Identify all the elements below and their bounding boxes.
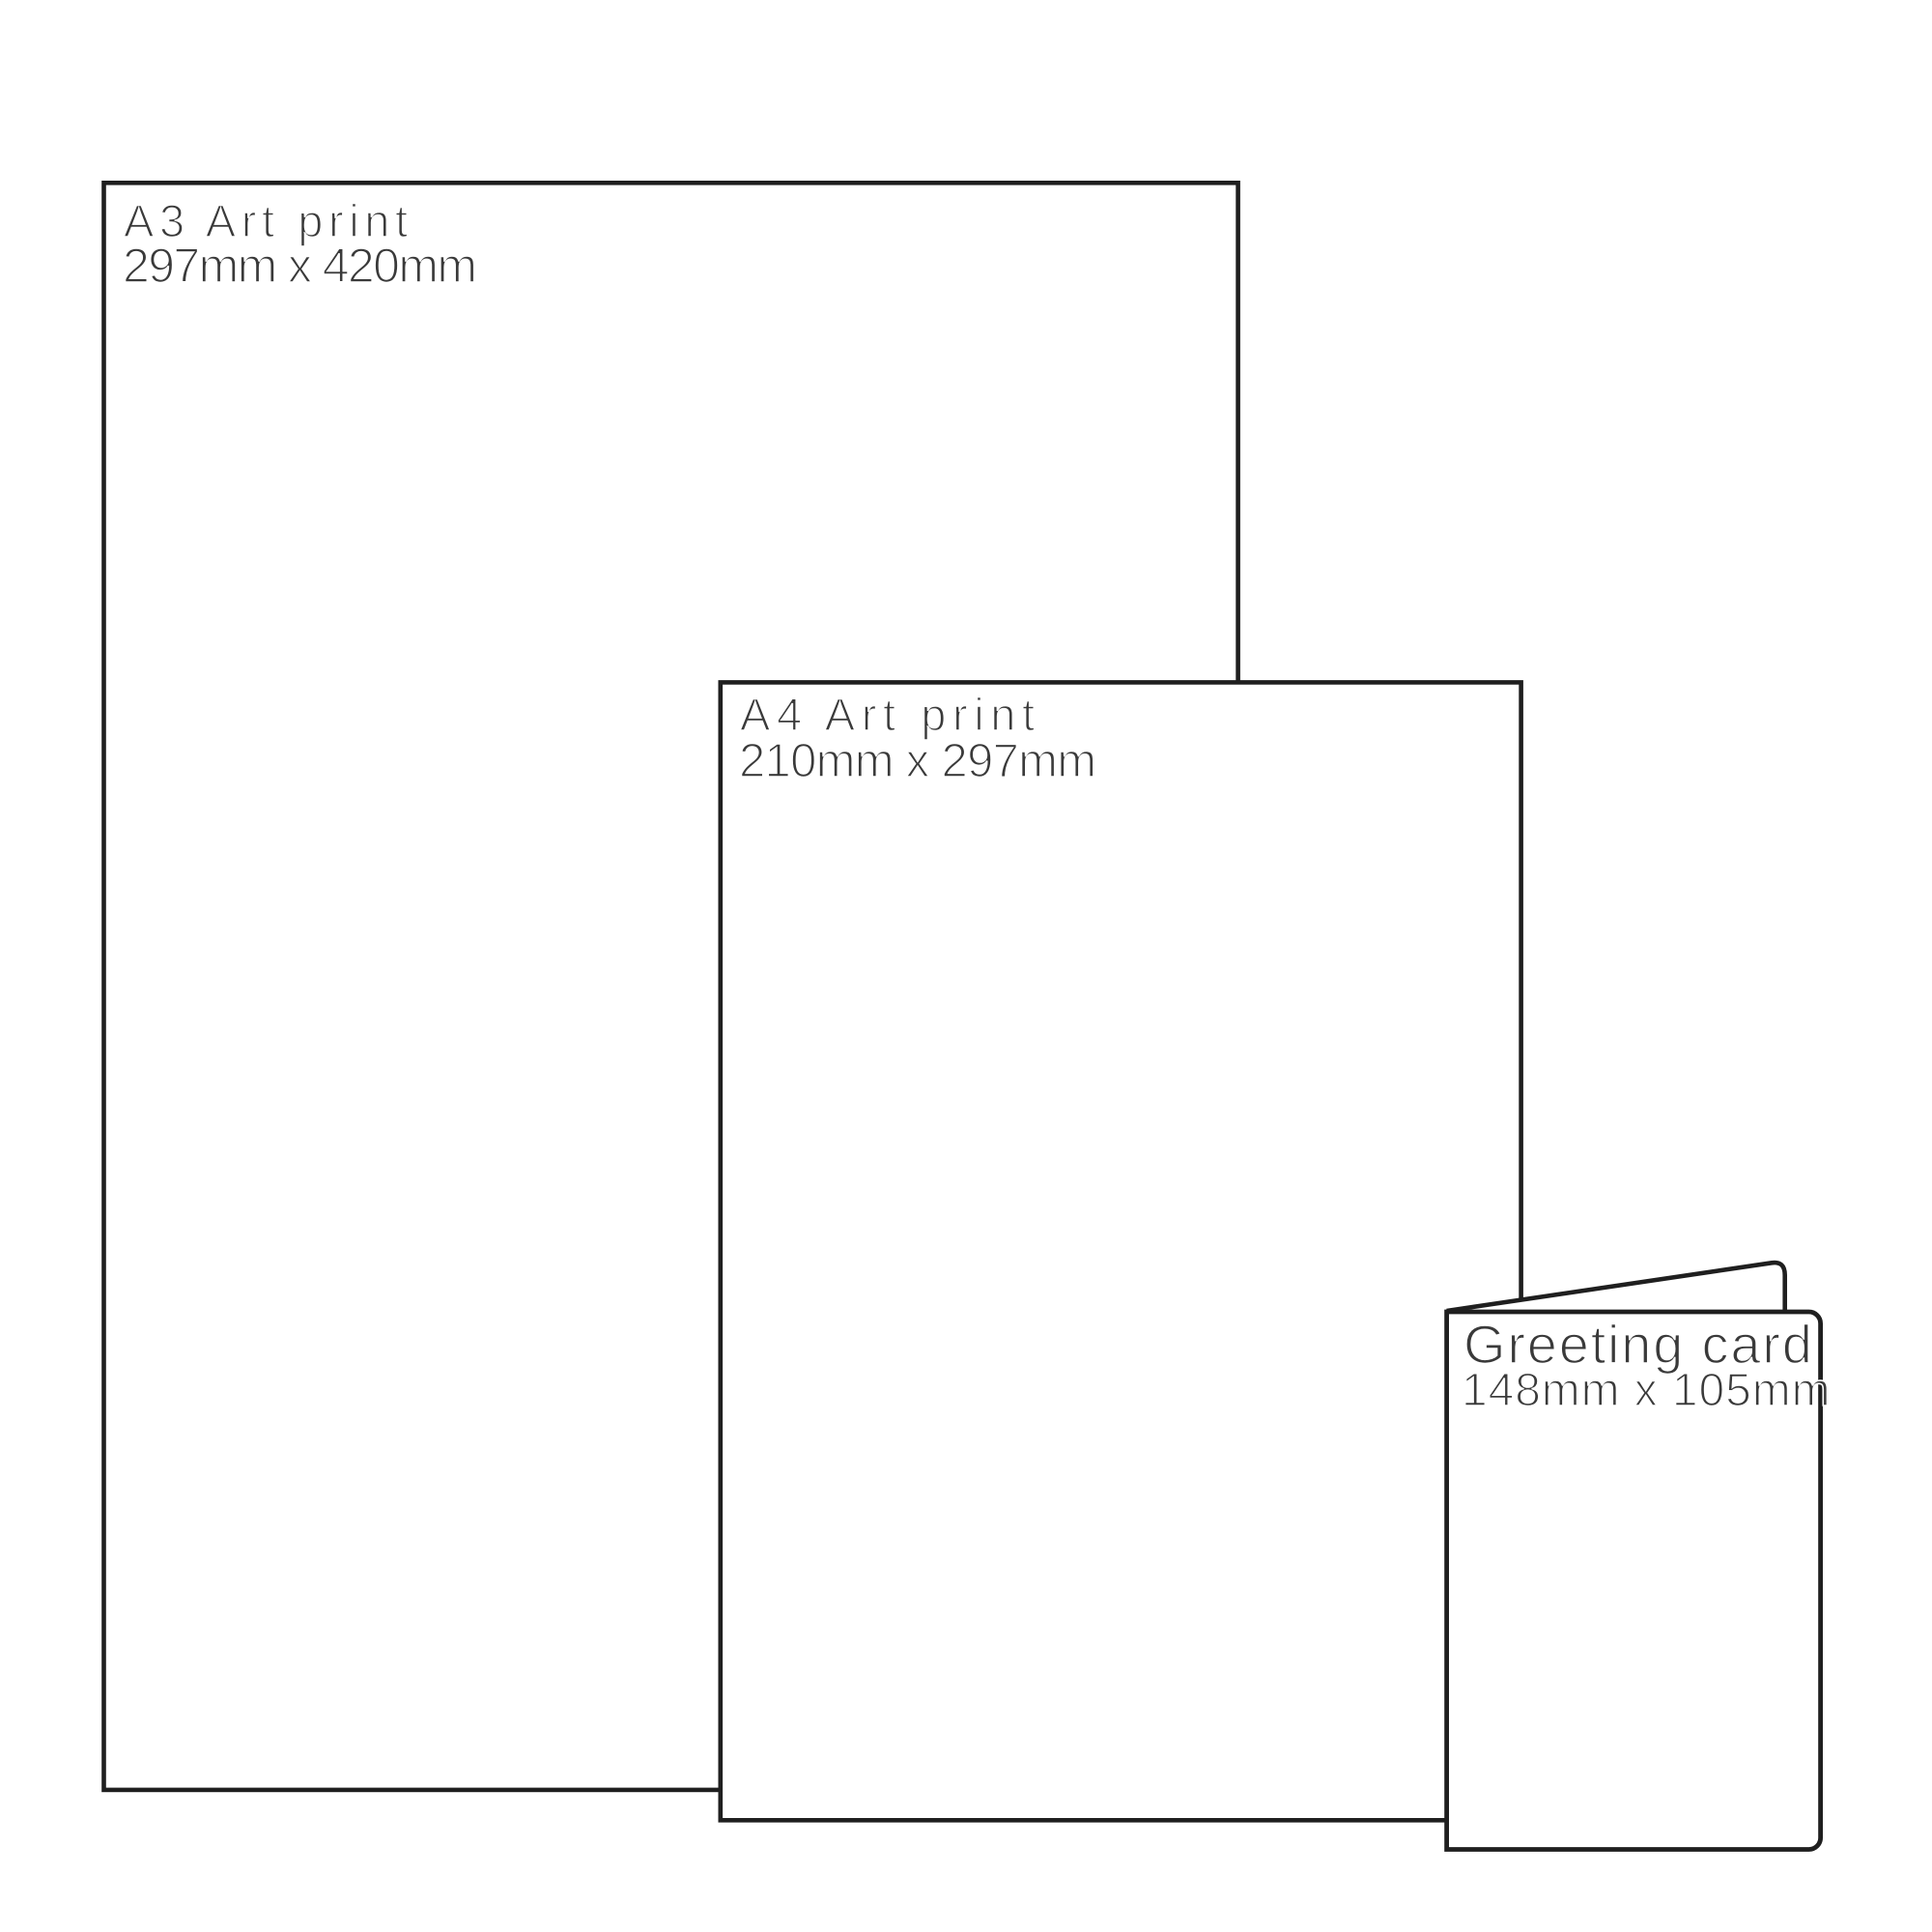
svg-text:210mm x 297mm: 210mm x 297mm bbox=[739, 735, 1095, 787]
svg-text:148mm x 105mm: 148mm x 105mm bbox=[1462, 1365, 1831, 1416]
svg-text:297mm x 420mm: 297mm x 420mm bbox=[123, 239, 475, 293]
svg-text:A4 Art print: A4 Art print bbox=[740, 689, 1041, 740]
